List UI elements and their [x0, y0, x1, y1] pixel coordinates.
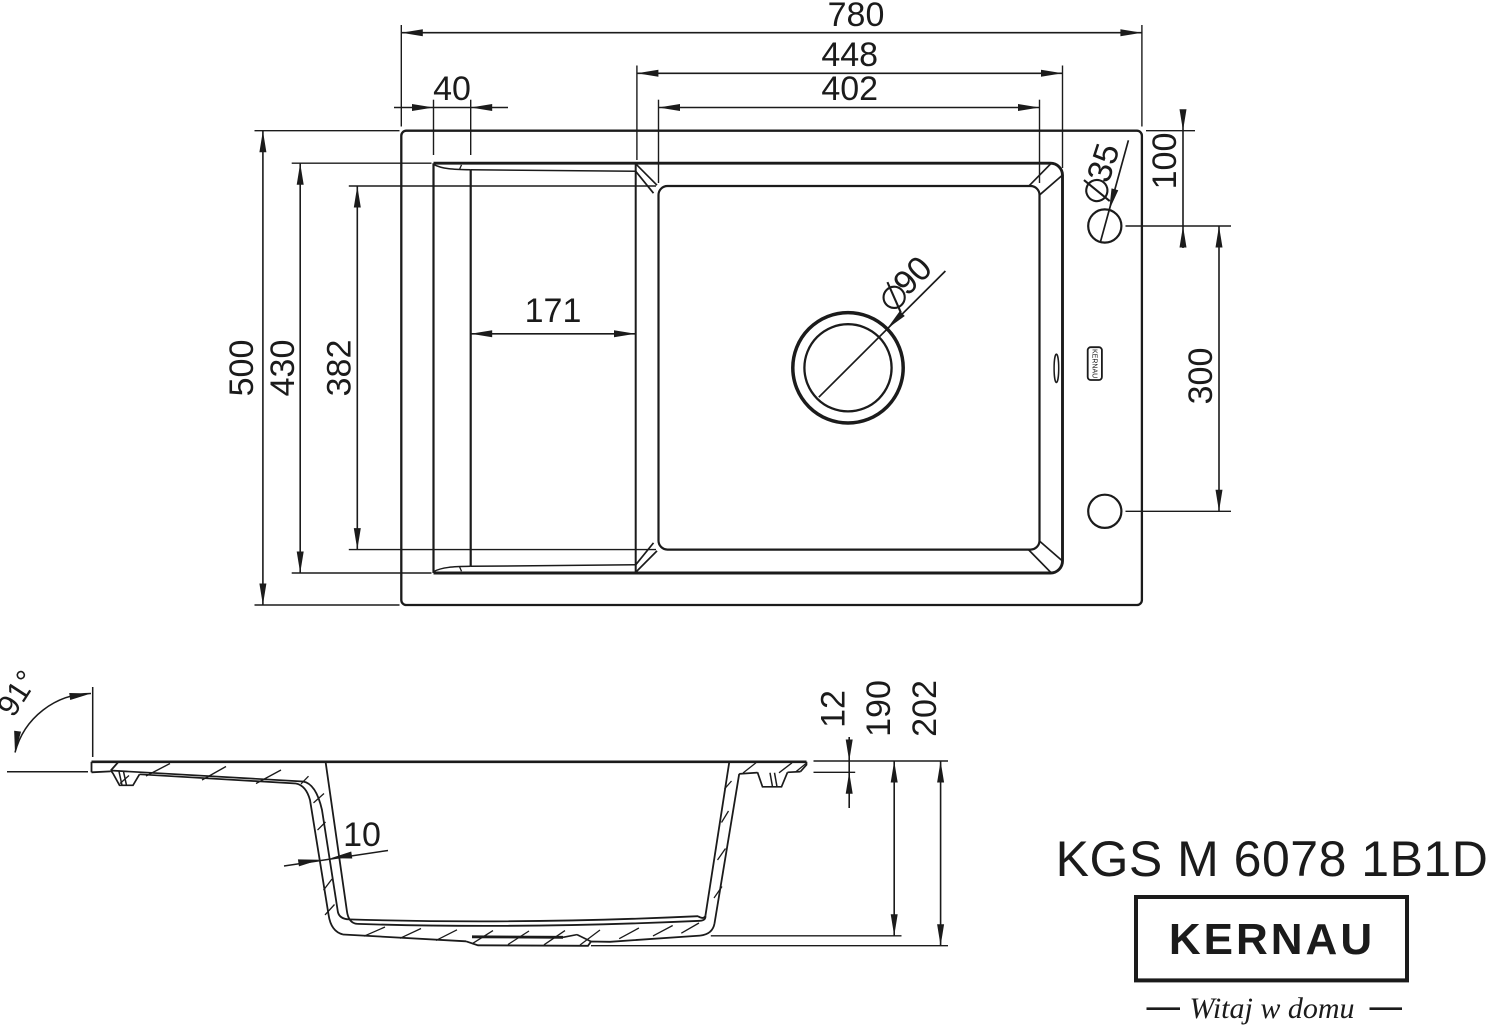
svg-text:KERNAU: KERNAU [1169, 915, 1375, 964]
svg-text:402: 402 [821, 70, 878, 108]
svg-text:300: 300 [1182, 348, 1220, 405]
svg-text:KGS M 6078 1B1D: KGS M 6078 1B1D [1056, 831, 1488, 887]
svg-text:12: 12 [815, 690, 853, 728]
svg-text:40: 40 [433, 70, 471, 108]
svg-text:448: 448 [821, 36, 878, 74]
svg-text:KERNAU: KERNAU [1091, 349, 1098, 378]
svg-text:171: 171 [525, 292, 582, 330]
svg-text:500: 500 [223, 340, 261, 397]
svg-text:190: 190 [860, 680, 898, 737]
svg-text:100: 100 [1146, 133, 1184, 190]
svg-text:202: 202 [906, 680, 944, 737]
svg-text:382: 382 [321, 340, 359, 397]
svg-text:10: 10 [343, 816, 381, 854]
svg-text:430: 430 [264, 340, 302, 397]
svg-text:Witaj w domu: Witaj w domu [1189, 992, 1354, 1025]
svg-text:780: 780 [828, 0, 885, 34]
